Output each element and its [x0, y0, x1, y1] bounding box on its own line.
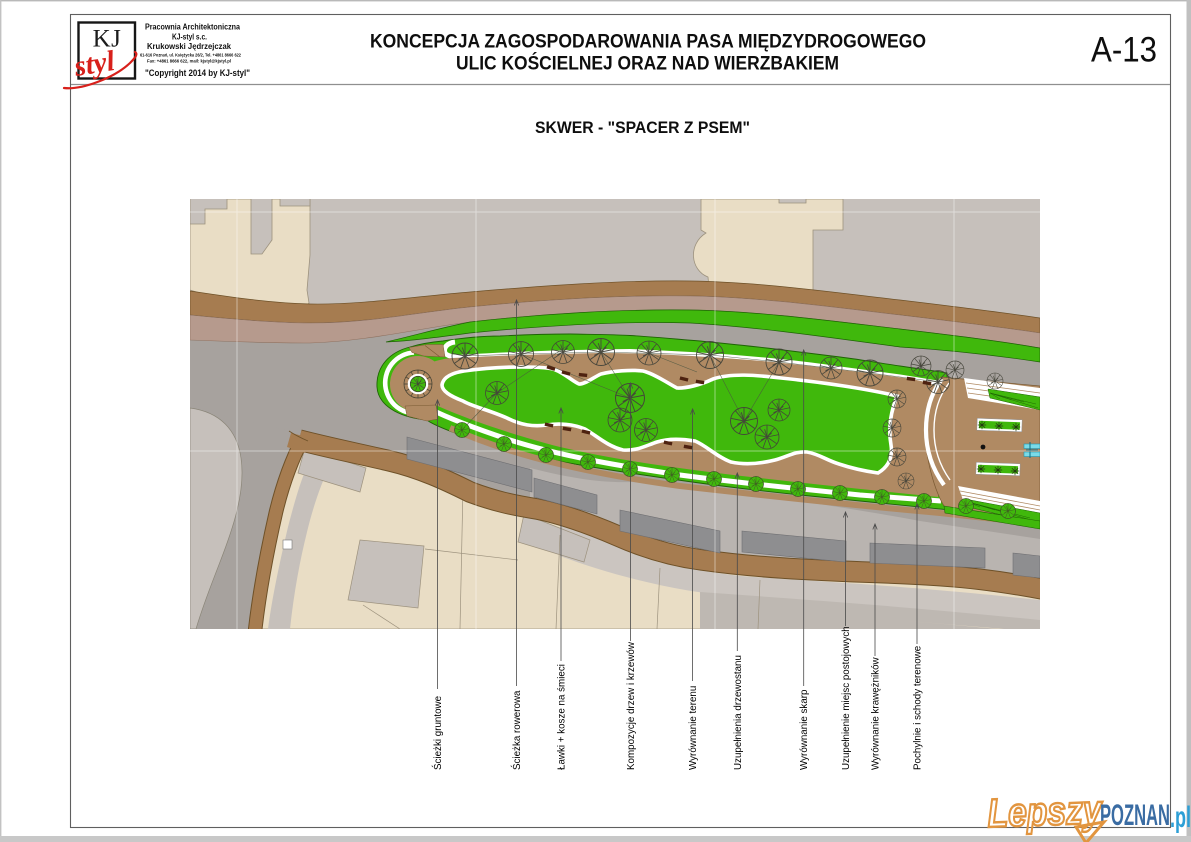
- svg-text:Ścieżka rowerowa: Ścieżka rowerowa: [511, 690, 523, 770]
- svg-text:ULIC KOŚCIELNEJ ORAZ NAD WIERZ: ULIC KOŚCIELNEJ ORAZ NAD WIERZBAKIEM: [456, 53, 839, 75]
- svg-text:SKWER - "SPACER Z PSEM": SKWER - "SPACER Z PSEM": [535, 119, 750, 137]
- svg-text:Wyrównanie skarp: Wyrównanie skarp: [799, 689, 810, 770]
- svg-text:POZNAN: POZNAN: [1100, 799, 1170, 832]
- svg-text:Kompozycje drzew i krzewów: Kompozycje drzew i krzewów: [626, 641, 637, 770]
- svg-text:Pracownia Architektoniczna: Pracownia Architektoniczna: [145, 22, 240, 32]
- svg-text:Uzupełnienie miejsc postojowyc: Uzupełnienie miejsc postojowych: [841, 626, 852, 770]
- svg-text:A-13: A-13: [1091, 31, 1157, 70]
- svg-text:Ścieżki gruntowe: Ścieżki gruntowe: [432, 695, 444, 770]
- svg-text:KONCEPCJA ZAGOSPODAROWANIA PAS: KONCEPCJA ZAGOSPODAROWANIA PASA MIĘDZYDR…: [370, 32, 926, 53]
- svg-text:Fax: +4861 8666 622, mail: kjs: Fax: +4861 8666 622, mail: kjstyl@kjstyl…: [147, 59, 231, 64]
- svg-text:Krukowski Jędrzejczak: Krukowski Jędrzejczak: [147, 41, 231, 51]
- svg-text:Lepszy: Lepszy: [987, 788, 1104, 836]
- svg-text:61-616 Poznań, ul. Księżycka 2: 61-616 Poznań, ul. Księżycka 26/2, Tel. …: [140, 53, 241, 58]
- svg-text:.pl: .pl: [1170, 801, 1191, 834]
- svg-text:"Copyright 2014 by KJ-styl": "Copyright 2014 by KJ-styl": [145, 68, 250, 79]
- svg-text:Wyrównanie terenu: Wyrównanie terenu: [688, 686, 699, 770]
- svg-text:Uzupełnienia drzewostanu: Uzupełnienia drzewostanu: [733, 655, 744, 770]
- svg-text:KJ-styl s.c.: KJ-styl s.c.: [172, 32, 207, 42]
- svg-text:Ławki + kosze na śmieci: Ławki + kosze na śmieci: [557, 664, 568, 770]
- svg-text:Wyrównanie krawężników: Wyrównanie krawężników: [871, 656, 882, 770]
- svg-text:Pochylnie i schody terenowe: Pochylnie i schody terenowe: [913, 645, 924, 770]
